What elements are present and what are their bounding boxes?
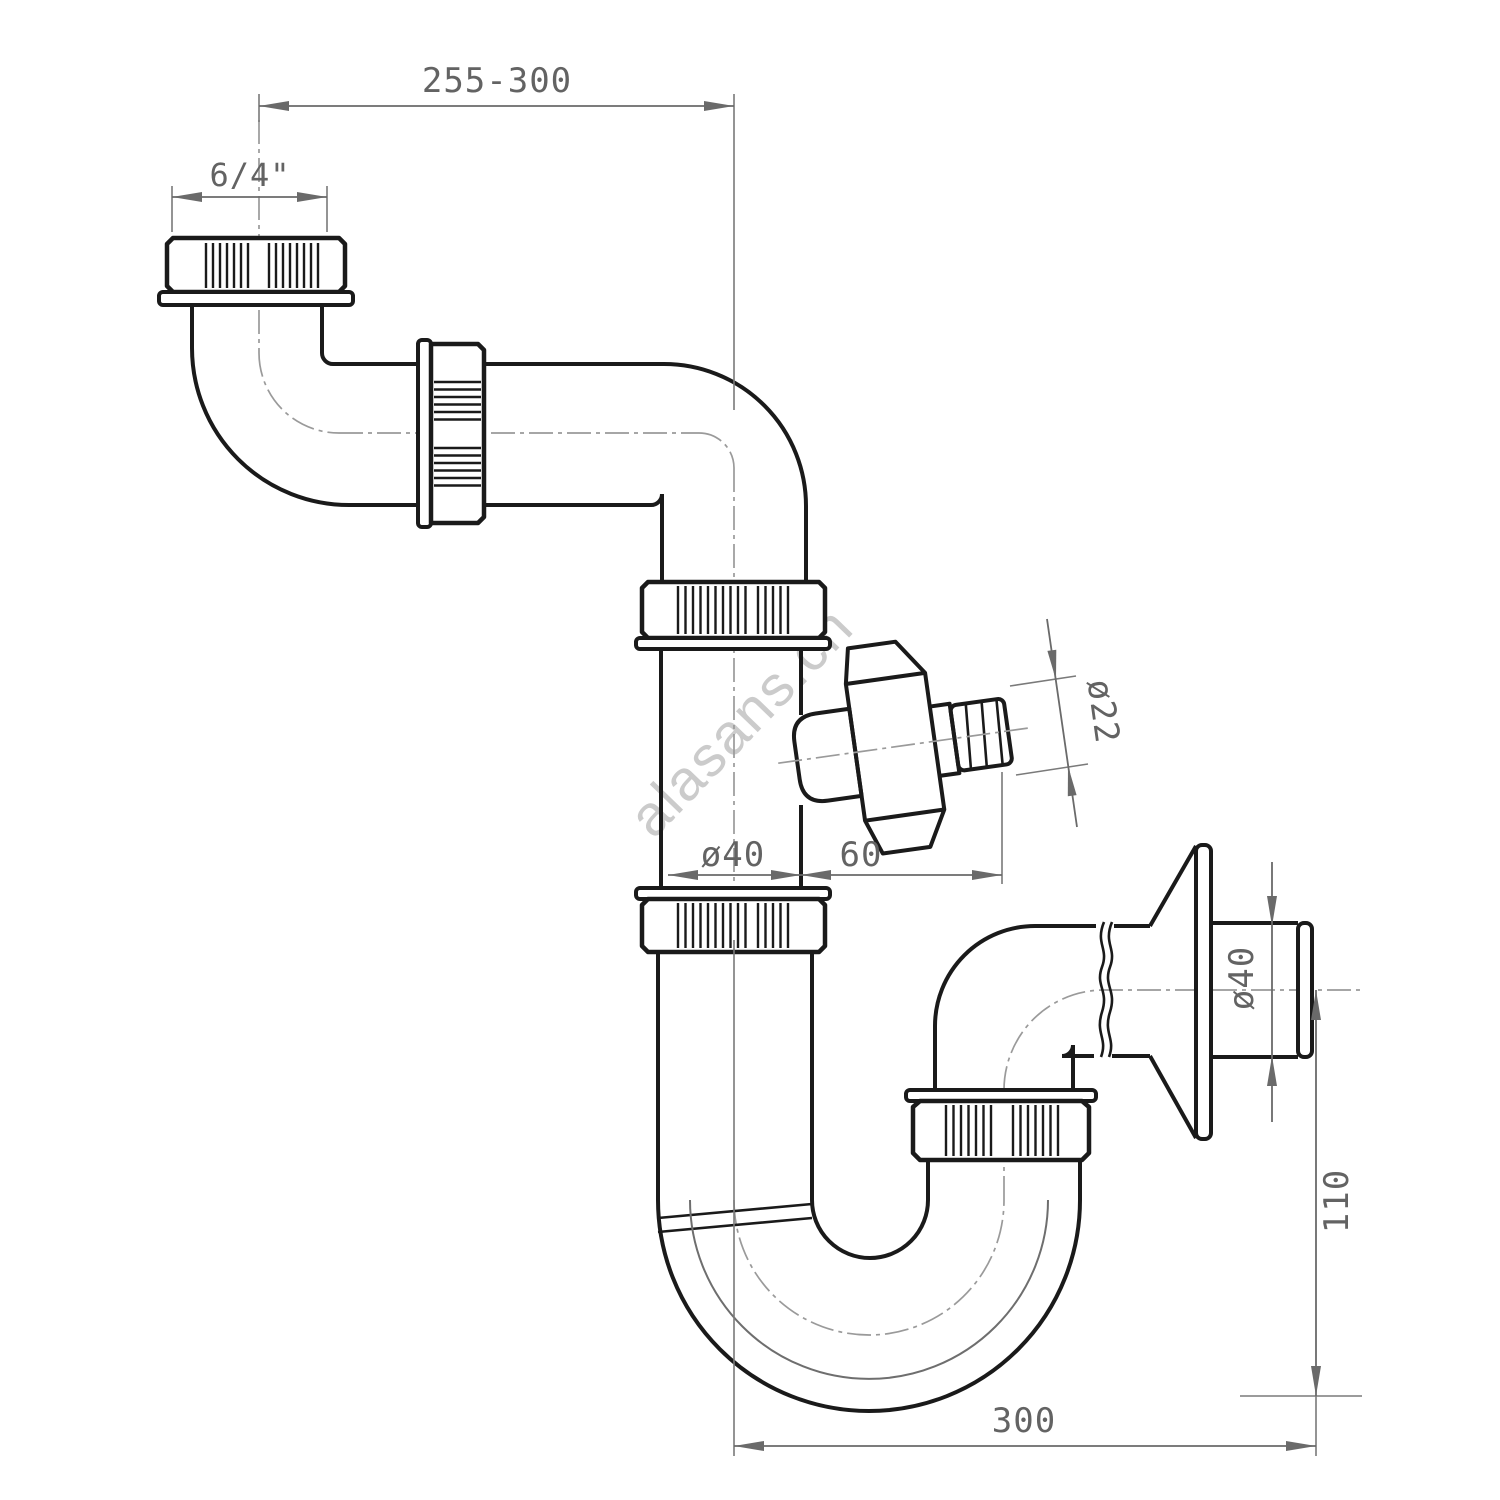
dim-overall-width-label: 255-300 (422, 61, 572, 101)
upper-tube-nut (636, 582, 830, 649)
dim-outlet-diameter-label: ø40 (1222, 946, 1262, 1010)
dim-inlet-thread-label: 6/4" (209, 156, 290, 194)
dim-trap-span-label: 300 (992, 1401, 1056, 1441)
dim-pipe-diameter-label: ø40 (701, 835, 765, 875)
down-elbow (651, 364, 806, 582)
dim-branch-diameter-label: ø22 (1079, 677, 1128, 746)
inlet-nut (159, 238, 353, 305)
dimension-outlet-diameter: ø40 (1222, 862, 1277, 1122)
wall-rosette-cone (1150, 845, 1211, 1139)
dim-branch-offset-label: 60 (840, 835, 883, 875)
drawing-sheet: alasans.ch (0, 0, 1500, 1500)
dimension-inlet-thread: 6/4" (172, 156, 327, 232)
outlet-nut (906, 1090, 1096, 1160)
dimension-branch-diameter: ø22 (1010, 619, 1127, 827)
upper-tube-nut-flange (636, 638, 830, 649)
dim-outlet-height-label: 110 (1317, 1169, 1357, 1233)
lower-tube-nut (636, 888, 830, 952)
outlet-pipe-end (1298, 923, 1312, 1057)
horizontal-coupling-nut (418, 340, 484, 527)
siphon-technical-drawing: alasans.ch (0, 0, 1500, 1500)
dimension-overall-width: 255-300 (259, 61, 734, 410)
u-trap (658, 952, 1080, 1411)
dimension-trap-span: 300 (734, 940, 1316, 1456)
inlet-nut-flange (159, 292, 353, 305)
